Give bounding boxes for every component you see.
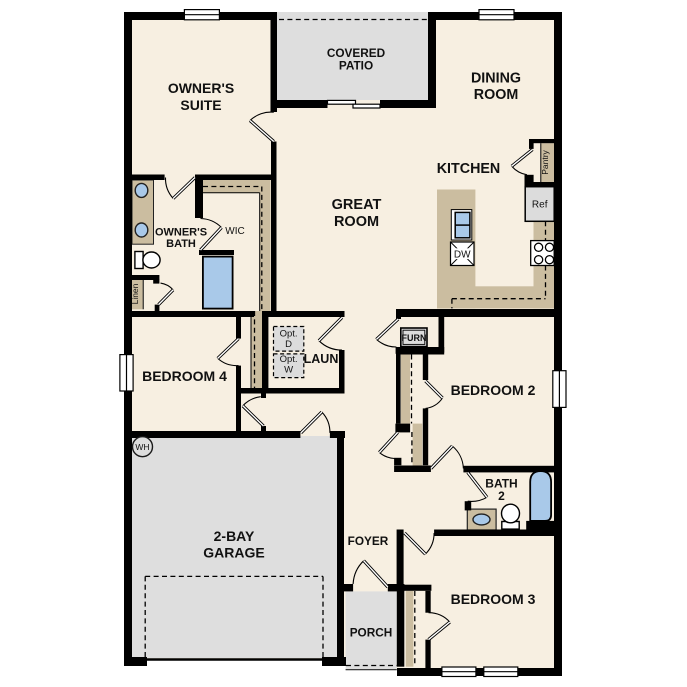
svg-text:Linen: Linen (130, 283, 140, 304)
svg-text:SUITE: SUITE (180, 97, 221, 113)
svg-text:D: D (285, 339, 292, 350)
svg-text:FOYER: FOYER (348, 534, 389, 548)
svg-text:PORCH: PORCH (350, 626, 393, 640)
svg-text:BEDROOM 2: BEDROOM 2 (451, 382, 536, 398)
svg-text:KITCHEN: KITCHEN (437, 161, 501, 177)
svg-text:OWNER'S: OWNER'S (168, 80, 234, 96)
svg-text:2-BAY: 2-BAY (214, 528, 255, 544)
svg-text:LAUN: LAUN (304, 352, 339, 366)
svg-text:OWNER'S: OWNER'S (155, 227, 207, 239)
svg-text:BEDROOM 4: BEDROOM 4 (142, 368, 227, 384)
svg-text:WH: WH (135, 442, 149, 452)
svg-text:Pantry: Pantry (540, 149, 550, 174)
svg-text:DINING: DINING (471, 71, 521, 87)
svg-text:DW: DW (454, 250, 471, 261)
svg-text:BEDROOM 3: BEDROOM 3 (451, 591, 536, 607)
svg-text:ROOM: ROOM (474, 87, 518, 103)
svg-text:GARAGE: GARAGE (203, 545, 264, 561)
svg-text:BATH: BATH (166, 238, 196, 250)
svg-text:Ref: Ref (532, 200, 548, 211)
svg-text:ROOM: ROOM (334, 214, 379, 230)
svg-text:Opt.: Opt. (280, 329, 298, 340)
svg-text:FURN: FURN (402, 333, 427, 343)
svg-text:W: W (284, 365, 293, 376)
svg-text:PATIO: PATIO (339, 59, 373, 73)
svg-text:GREAT: GREAT (332, 197, 382, 213)
svg-text:2: 2 (498, 489, 505, 503)
svg-text:WIC: WIC (225, 226, 244, 237)
svg-text:Opt.: Opt. (280, 354, 298, 365)
